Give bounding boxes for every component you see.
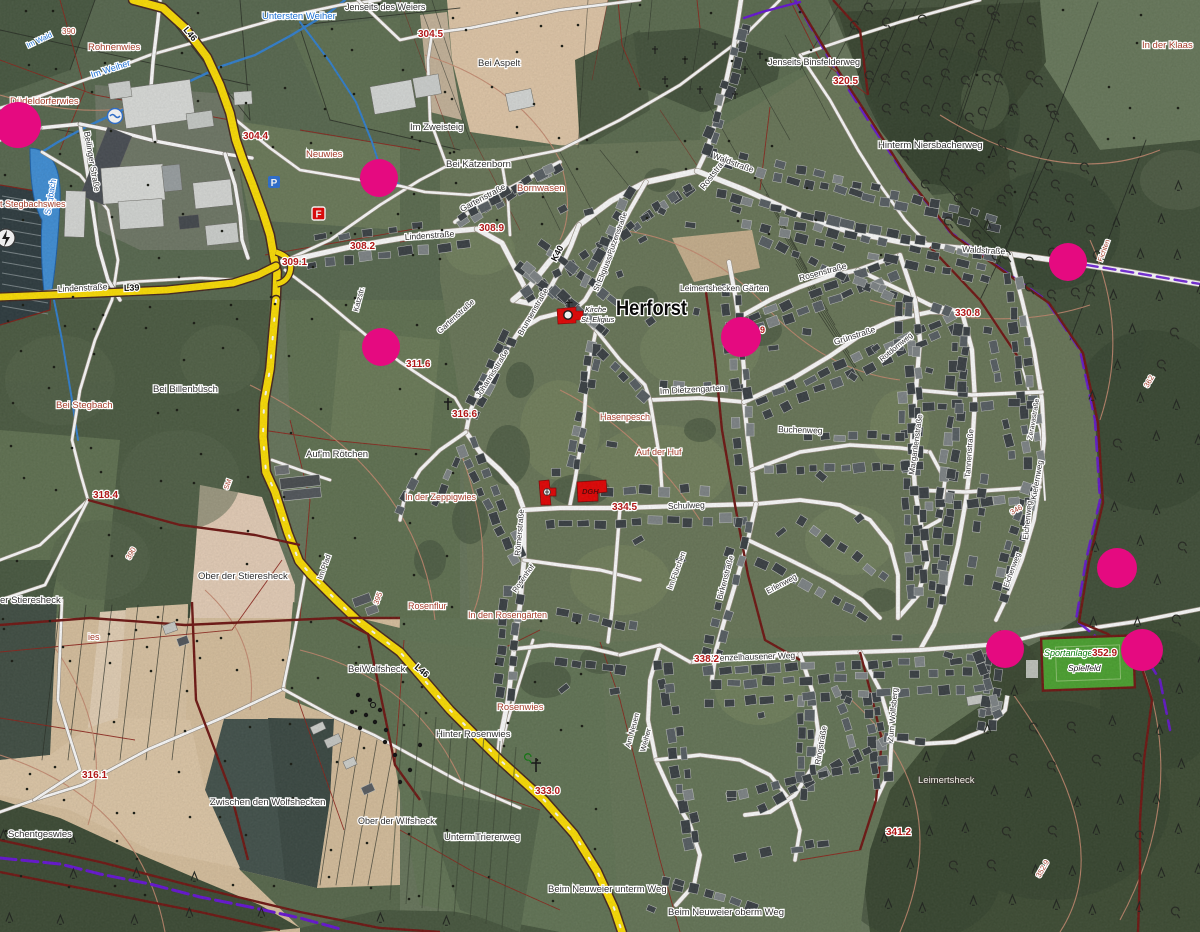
- svg-text:St. Eligius: St. Eligius: [581, 315, 615, 324]
- svg-text:308.9: 308.9: [479, 223, 504, 234]
- svg-text:338.2: 338.2: [694, 654, 719, 665]
- svg-text:Schulweg: Schulweg: [668, 500, 705, 511]
- svg-text:Rosenwies: Rosenwies: [497, 702, 544, 713]
- svg-text:Bei Billenbüsch: Bei Billenbüsch: [153, 384, 218, 395]
- svg-text:Hinterm Niersbacherweg: Hinterm Niersbacherweg: [878, 140, 983, 151]
- svg-text:Auf'm Rötchen: Auf'm Rötchen: [306, 449, 368, 460]
- svg-text:Im Zweisteig: Im Zweisteig: [410, 122, 463, 133]
- svg-text:Beim Neuweier unterm Weg: Beim Neuweier unterm Weg: [548, 884, 667, 895]
- svg-text:304.5: 304.5: [418, 29, 443, 40]
- svg-text:Bei Stegbach: Bei Stegbach: [56, 400, 113, 411]
- svg-text:333.0: 333.0: [535, 786, 560, 797]
- svg-text:Schentgeswies: Schentgeswies: [8, 829, 72, 840]
- svg-text:Spielfeld: Spielfeld: [1068, 663, 1101, 673]
- svg-text:ies: ies: [88, 632, 100, 642]
- svg-text:Kirche: Kirche: [585, 305, 606, 314]
- svg-text:Jenseits des Weiers: Jenseits des Weiers: [345, 2, 426, 12]
- svg-text:er Stieresheck: er Stieresheck: [0, 595, 61, 606]
- svg-text:In der Klaas: In der Klaas: [1142, 40, 1193, 51]
- svg-text:Bornwasen: Bornwasen: [517, 183, 565, 194]
- svg-text:Buchenweg: Buchenweg: [778, 424, 823, 436]
- svg-text:309.1: 309.1: [282, 257, 307, 268]
- svg-text:316.1: 316.1: [82, 770, 107, 781]
- svg-text:341.2: 341.2: [886, 827, 911, 838]
- svg-text:Bei Katzenborn: Bei Katzenborn: [446, 159, 511, 170]
- svg-text:Sportanlage: Sportanlage: [1044, 648, 1093, 658]
- svg-text:352.9: 352.9: [1092, 648, 1117, 659]
- svg-text:Ober der W: Ober der W: [358, 816, 405, 826]
- svg-text:Leimertsheck: Leimertsheck: [918, 775, 975, 786]
- svg-text:BeiWolfsheck: BeiWolfsheck: [348, 664, 406, 675]
- svg-text:311.6: 311.6: [406, 359, 431, 370]
- svg-text:Hasenpesch: Hasenpesch: [600, 412, 650, 422]
- svg-text:Ober der Stieresheck: Ober der Stieresheck: [198, 571, 288, 582]
- svg-text:t Stegbachswies: t Stegbachswies: [0, 199, 66, 209]
- svg-text:UntermTriererweg: UntermTriererweg: [444, 832, 520, 843]
- svg-text:L39: L39: [124, 282, 140, 293]
- svg-text:Hinter Rosenwies: Hinter Rosenwies: [436, 729, 511, 740]
- svg-text:320.5: 320.5: [833, 76, 858, 87]
- svg-text:318.4: 318.4: [93, 490, 118, 501]
- svg-text:316.6: 316.6: [452, 409, 477, 420]
- svg-text:304.4: 304.4: [243, 131, 268, 142]
- svg-text:olfsheck: olfsheck: [400, 816, 435, 827]
- svg-text:308.2: 308.2: [350, 241, 375, 252]
- svg-text:Zwischen den Wolfshecken: Zwischen den Wolfshecken: [210, 797, 325, 808]
- svg-text:Beim Neuweier oberm Weg: Beim Neuweier oberm Weg: [668, 907, 784, 918]
- svg-text:Auf der Huf: Auf der Huf: [636, 447, 682, 457]
- svg-text:390: 390: [62, 27, 76, 36]
- svg-text:334.5: 334.5: [612, 502, 637, 513]
- svg-text:Herforst: Herforst: [616, 297, 687, 320]
- svg-text:Bei Aspelt: Bei Aspelt: [478, 58, 521, 69]
- svg-text:Jenseits Binsfelderweg: Jenseits Binsfelderweg: [768, 57, 860, 67]
- svg-text:Leimertshecken Gärten: Leimertshecken Gärten: [680, 283, 769, 293]
- svg-text:In der Zeppigwies: In der Zeppigwies: [405, 492, 477, 502]
- svg-text:Neuwies: Neuwies: [306, 149, 343, 160]
- svg-text:In den Rosengärten: In den Rosengärten: [468, 610, 547, 620]
- svg-text:330.8: 330.8: [955, 308, 980, 319]
- svg-text:Rohnenwies: Rohnenwies: [88, 42, 141, 53]
- svg-text:9: 9: [760, 325, 765, 335]
- svg-text:Untersten Weiher: Untersten Weiher: [262, 11, 336, 22]
- svg-text:Rosenflur: Rosenflur: [408, 601, 447, 611]
